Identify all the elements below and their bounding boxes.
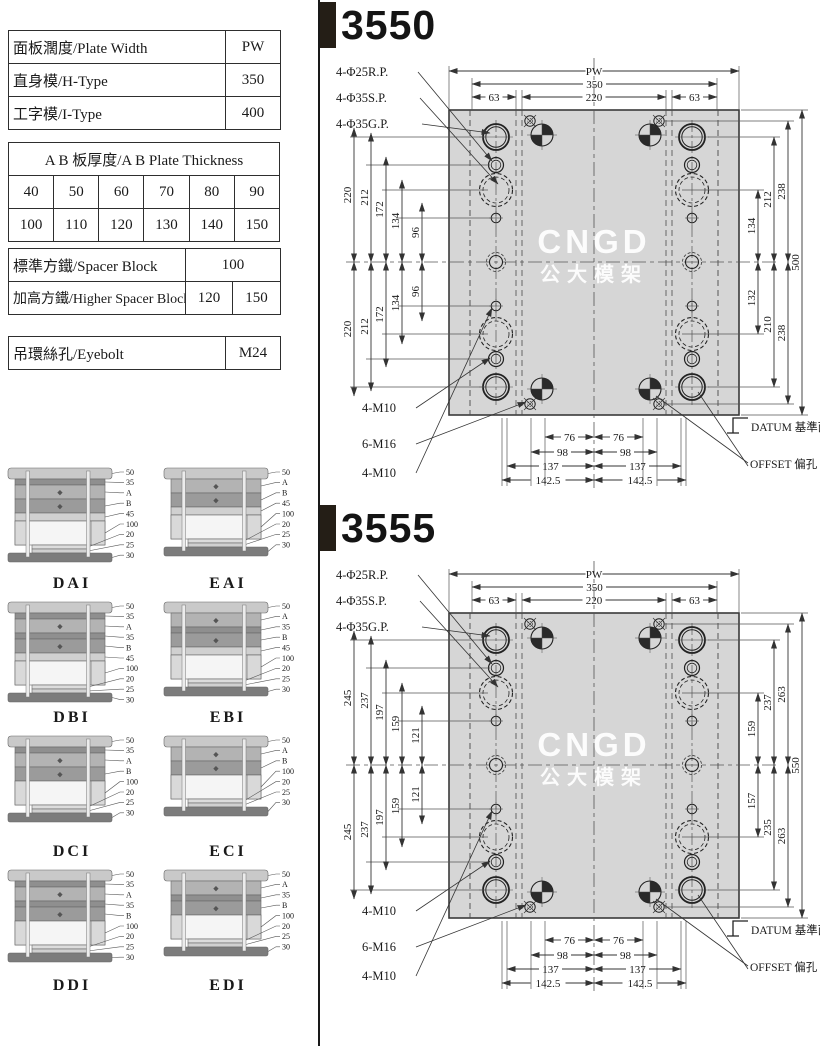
mold-type-cell: 50◆A35◆B45100202530EBI — [158, 598, 314, 732]
mold-layer — [8, 553, 112, 562]
mold-type-cell: 5035◆A◆B45100202530DAI — [2, 464, 158, 598]
guide-pin — [26, 471, 30, 557]
mold-layer — [164, 947, 268, 956]
dim-label: 245 — [342, 823, 354, 840]
spec-value: 400 — [226, 97, 281, 130]
svg-text:◆: ◆ — [57, 503, 63, 511]
mold-layer-label: 35 — [282, 623, 290, 632]
guide-pin — [243, 605, 247, 691]
mold-layer-label: 50 — [126, 602, 134, 611]
dim-label: 121 — [410, 786, 422, 803]
mold-layer-label: 20 — [282, 777, 290, 786]
guide-pin — [243, 471, 247, 551]
guide-pin — [182, 605, 186, 691]
thickness-cell: 90 — [234, 176, 279, 209]
dim-label: 212 — [762, 191, 774, 208]
offset-label: OFFSET 偏孔 — [750, 960, 818, 974]
hole-callout-label: 4-Φ35G.P. — [336, 117, 389, 131]
dim-label: 263 — [776, 686, 788, 703]
mold-type-cell: 5035◆A◆B100202530DCI — [2, 732, 158, 866]
thickness-cell: 80 — [189, 176, 234, 209]
datum-symbol — [727, 921, 748, 936]
dim-label: 172 — [374, 306, 386, 323]
dim-label: 142.5 — [536, 475, 561, 487]
mold-layer — [188, 803, 244, 807]
dim-label: 63 — [489, 595, 501, 607]
hole-callout-label: 4-Φ35S.P. — [336, 91, 387, 105]
mold-type-name: EDI — [158, 977, 298, 995]
mold-layer — [8, 870, 112, 881]
svg-text:◆: ◆ — [57, 489, 63, 497]
dim-label: 134 — [390, 212, 402, 229]
svg-text:◆: ◆ — [213, 637, 219, 645]
mold-layer-label: A — [126, 757, 132, 766]
dim-label: 63 — [689, 595, 701, 607]
thickness-cell: 130 — [144, 209, 189, 242]
mold-layer — [164, 870, 268, 881]
dim-label: 210 — [762, 316, 774, 333]
datum-symbol — [727, 418, 748, 433]
watermark-logo: 公大模架 — [540, 765, 648, 789]
dim-label: 134 — [746, 217, 758, 234]
datum-label: DATUM 基準面 — [751, 420, 820, 434]
mold-layer — [8, 813, 112, 822]
watermark-logo: 公大模架 — [540, 262, 648, 286]
mold-layer-label: B — [282, 633, 287, 642]
mold-layer-label: 25 — [126, 798, 134, 807]
mold-type-name: ECI — [158, 843, 298, 861]
dim-label: 157 — [746, 792, 758, 809]
dim-label: 63 — [489, 92, 501, 104]
plate-top-view-drawing: CNGD公大模架22022021221217217213413496961341… — [320, 55, 820, 505]
mold-layer — [8, 693, 112, 702]
drawing-header: 3555 — [320, 505, 436, 551]
mold-layer-label: 20 — [282, 520, 290, 529]
screw-callout-label: 4-M10 — [362, 969, 396, 983]
mold-layer-label: B — [282, 489, 287, 498]
catalog-page: 面板濶度/Plate Width PW 直身模/H-Type 350 工字模/I… — [0, 0, 820, 1046]
dim-label: 142.5 — [628, 978, 653, 990]
dim-label: 76 — [613, 935, 625, 947]
mold-layer-label: 25 — [126, 541, 134, 550]
screw-callout-label: 4-M10 — [362, 401, 396, 415]
svg-text:◆: ◆ — [57, 771, 63, 779]
mold-layer-label: 30 — [126, 551, 134, 560]
dim-label: 220 — [342, 186, 354, 203]
screw-callout-label: 4-M10 — [362, 904, 396, 918]
spec-label: 直身模/H-Type — [9, 64, 226, 97]
spec-label: 加高方鐵/Higher Spacer Block — [9, 282, 186, 315]
mold-layer-label: 25 — [126, 943, 134, 952]
spec-value: 150 — [233, 282, 281, 315]
dim-label: 96 — [410, 227, 422, 239]
mold-layer-label: 50 — [282, 602, 290, 611]
thickness-cell: 60 — [99, 176, 144, 209]
mold-layer — [8, 602, 112, 613]
thickness-cell: 100 — [9, 209, 54, 242]
offset-label: OFFSET 偏孔 — [750, 457, 818, 471]
dim-label: 212 — [359, 189, 371, 206]
spec-value: 100 — [186, 249, 281, 282]
mold-layer-label: 30 — [126, 695, 134, 704]
dim-label: 98 — [620, 447, 632, 459]
dim-label: 98 — [620, 950, 632, 962]
dim-label: 159 — [746, 720, 758, 737]
plate-top-view-drawing: CNGD公大模架24524523723719719715915912112115… — [320, 558, 820, 1008]
svg-text:◆: ◆ — [57, 891, 63, 899]
svg-text:◆: ◆ — [213, 885, 219, 893]
dim-label: 263 — [776, 827, 788, 844]
title-bar-mark — [320, 2, 336, 48]
guide-pin — [182, 873, 186, 951]
mold-layer-label: 45 — [126, 509, 134, 518]
svg-text:◆: ◆ — [213, 483, 219, 491]
mold-layer-label: B — [126, 643, 131, 652]
svg-text:◆: ◆ — [213, 751, 219, 759]
spec-value: 350 — [226, 64, 281, 97]
guide-pin — [243, 873, 247, 951]
mold-layer-label: 25 — [282, 932, 290, 941]
dim-label: 142.5 — [536, 978, 561, 990]
mold-section-diagram: 5035◆A◆B100202530 — [2, 732, 158, 844]
dim-label: 159 — [390, 797, 402, 814]
mold-type-cell: 5035◆A35◆B45100202530DBI — [2, 598, 158, 732]
dim-label: 237 — [762, 694, 774, 711]
mold-layer-label: B — [126, 911, 131, 920]
dim-label: 238 — [776, 183, 788, 200]
mold-layer-label: A — [282, 746, 288, 755]
mold-layer — [188, 539, 244, 543]
mold-layer — [164, 602, 268, 613]
mold-layer-label: A — [282, 880, 288, 889]
thickness-cell: 50 — [54, 176, 99, 209]
hole-callout-label: 4-Φ25R.P. — [336, 65, 388, 79]
spec-table-spacer: 標準方鐵/Spacer Block 100 加高方鐵/Higher Spacer… — [8, 248, 281, 315]
mold-layer-label: 20 — [126, 530, 134, 539]
mold-layer-label: 25 — [282, 530, 290, 539]
dim-label: 96 — [410, 286, 422, 298]
svg-text:◆: ◆ — [213, 497, 219, 505]
spec-tables: 面板濶度/Plate Width PW 直身模/H-Type 350 工字模/I… — [8, 30, 280, 370]
dim-label: 245 — [342, 689, 354, 706]
watermark-logo: CNGD — [537, 726, 650, 763]
screw-callout-label: 4-M10 — [362, 466, 396, 480]
guide-pin — [87, 471, 91, 557]
datum-label: DATUM 基準面 — [751, 923, 820, 937]
drawing-section-3555: 3555 CNGD公大模架245245237237197197159159121… — [320, 503, 820, 1046]
dim-label: 76 — [564, 432, 576, 444]
mold-layer-label: B — [126, 499, 131, 508]
mold-layer — [188, 943, 244, 947]
guide-pin — [87, 873, 91, 957]
mold-layer-label: 100 — [126, 664, 138, 673]
dim-label: 220 — [342, 320, 354, 337]
mold-type-name: DAI — [2, 575, 142, 593]
screw-callout-label: 6-M16 — [362, 940, 396, 954]
svg-text:◆: ◆ — [57, 757, 63, 765]
spec-table-basic: 面板濶度/Plate Width PW 直身模/H-Type 350 工字模/I… — [8, 30, 281, 130]
guide-pin — [26, 873, 30, 957]
svg-text:◆: ◆ — [213, 617, 219, 625]
mold-layer-label: 35 — [126, 901, 134, 910]
watermark-logo: CNGD — [537, 223, 650, 260]
mold-type-cell: 50◆A◆B45100202530EAI — [158, 464, 314, 598]
mold-section-diagram: 5035◆A35◆B45100202530 — [2, 598, 158, 710]
spec-table-eyebolt: 吊環絲孔/Eyebolt M24 — [8, 336, 281, 370]
mold-type-name: EAI — [158, 575, 298, 593]
mold-layer-label: A — [126, 623, 132, 632]
mold-layer-label: A — [126, 489, 132, 498]
mold-layer-label: B — [282, 757, 287, 766]
mold-type-name: EBI — [158, 709, 298, 727]
dim-label: 237 — [359, 692, 371, 709]
mold-type-name: DDI — [2, 977, 142, 995]
mold-type-cell: 50◆A◆B100202530ECI — [158, 732, 314, 866]
mold-layer-label: 50 — [126, 468, 134, 477]
mold-layer-label: 50 — [282, 870, 290, 879]
mold-layer-label: 30 — [282, 943, 290, 952]
dim-label: 220 — [586, 595, 603, 607]
svg-text:◆: ◆ — [57, 911, 63, 919]
guide-pin — [182, 471, 186, 551]
mold-layer — [32, 549, 88, 553]
mold-layer — [32, 949, 88, 953]
mold-section-diagram: 50◆A◆B45100202530 — [158, 464, 314, 576]
drawing-title: 3550 — [341, 2, 436, 48]
mold-layer-label: 20 — [282, 664, 290, 673]
mold-layer-label: 25 — [126, 685, 134, 694]
title-bar-mark — [320, 505, 336, 551]
screw-callout-label: 6-M16 — [362, 437, 396, 451]
mold-layer-label: 35 — [282, 891, 290, 900]
mold-layer-label: 30 — [126, 809, 134, 818]
dim-label: 172 — [374, 201, 386, 218]
dim-label: 550 — [790, 757, 802, 774]
mold-layer-label: 100 — [126, 777, 138, 786]
mold-layer-label: 50 — [126, 870, 134, 879]
hole-callout-label: 4-Φ35G.P. — [336, 620, 389, 634]
mold-layer — [32, 809, 88, 813]
drawing-header: 3550 — [320, 2, 436, 48]
dim-label: 137 — [629, 461, 646, 473]
spec-label: 吊環絲孔/Eyebolt — [9, 337, 226, 370]
mold-layer-label: 20 — [126, 788, 134, 797]
thickness-cell: 150 — [234, 209, 279, 242]
mold-layer-label: A — [282, 612, 288, 621]
svg-text:◆: ◆ — [213, 905, 219, 913]
mold-layer — [8, 736, 112, 747]
guide-pin — [87, 605, 91, 697]
mold-layer-label: 20 — [126, 675, 134, 684]
guide-pin — [243, 739, 247, 811]
dim-label: 137 — [629, 964, 646, 976]
mold-layer-label: 45 — [126, 654, 134, 663]
dim-label: 63 — [689, 92, 701, 104]
guide-pin — [182, 739, 186, 811]
svg-text:◆: ◆ — [57, 643, 63, 651]
mold-layer — [32, 945, 88, 949]
mold-layer-label: 100 — [282, 767, 294, 776]
dim-label: 235 — [762, 819, 774, 836]
dim-label: 76 — [613, 432, 625, 444]
thickness-cell: 70 — [144, 176, 189, 209]
thickness-cell: 140 — [189, 209, 234, 242]
mold-layer — [188, 939, 244, 943]
mold-layer-label: 30 — [126, 953, 134, 962]
mold-layer — [188, 679, 244, 683]
mold-section-diagram: 5035◆A◆B45100202530 — [2, 464, 158, 576]
thickness-cell: 110 — [54, 209, 99, 242]
mold-layer-label: A — [126, 891, 132, 900]
dim-label: 76 — [564, 935, 576, 947]
drawing-title: 3555 — [341, 505, 436, 551]
mold-layer-label: 100 — [126, 922, 138, 931]
mold-layer — [188, 543, 244, 547]
mold-layer-label: 50 — [282, 736, 290, 745]
mold-type-name: DCI — [2, 843, 142, 861]
dim-label: 98 — [557, 447, 569, 459]
mold-layer-label: 50 — [126, 736, 134, 745]
spec-value: PW — [226, 31, 281, 64]
mold-layer-label: 30 — [282, 685, 290, 694]
dim-label: 237 — [359, 821, 371, 838]
mold-layer-label: 20 — [126, 932, 134, 941]
mold-layer-label: 35 — [126, 633, 134, 642]
mold-layer-label: 100 — [282, 911, 294, 920]
mold-layer-label: A — [282, 478, 288, 487]
mold-layer-label: 30 — [282, 541, 290, 550]
mold-layer-label: 45 — [282, 643, 290, 652]
mold-section-diagram: 50◆A35◆B45100202530 — [158, 598, 314, 710]
mold-section-diagram: 5035◆A35◆B100202530 — [2, 866, 158, 978]
mold-layer-label: 25 — [282, 788, 290, 797]
svg-text:◆: ◆ — [213, 765, 219, 773]
guide-pin — [87, 739, 91, 817]
mold-layer-label: 50 — [282, 468, 290, 477]
mold-layer-label: 30 — [282, 798, 290, 807]
mold-layer-label: 20 — [282, 922, 290, 931]
mold-section-diagram: 50◆A35◆B100202530 — [158, 866, 314, 978]
dim-label: 197 — [374, 809, 386, 826]
spec-value: 120 — [186, 282, 233, 315]
mold-layer-label: B — [126, 767, 131, 776]
hole-callout-label: 4-Φ25R.P. — [336, 568, 388, 582]
dim-label: 500 — [790, 254, 802, 271]
spec-label: 面板濶度/Plate Width — [9, 31, 226, 64]
guide-pin — [26, 739, 30, 817]
mold-layer — [32, 545, 88, 549]
mold-layer — [188, 799, 244, 803]
guide-pin — [26, 605, 30, 697]
dim-label: 350 — [586, 79, 603, 91]
dim-label: 134 — [390, 294, 402, 311]
dim-label: 197 — [374, 704, 386, 721]
spec-label: 工字模/I-Type — [9, 97, 226, 130]
mold-layer — [32, 805, 88, 809]
mold-layer — [164, 468, 268, 479]
mold-layer — [164, 807, 268, 816]
thickness-cell: 40 — [9, 176, 54, 209]
mold-layer — [8, 468, 112, 479]
dim-label: PW — [586, 66, 603, 78]
dim-label: PW — [586, 569, 603, 581]
mold-layer-label: 100 — [282, 509, 294, 518]
mold-layer-label: 35 — [126, 612, 134, 621]
thickness-cell: 120 — [99, 209, 144, 242]
spec-value: M24 — [226, 337, 281, 370]
mold-layer-label: 100 — [282, 654, 294, 663]
thickness-header: A B 板厚度/A B Plate Thickness — [9, 143, 280, 176]
dim-label: 142.5 — [628, 475, 653, 487]
mold-layer-label: 35 — [126, 746, 134, 755]
spec-label: 標準方鐵/Spacer Block — [9, 249, 186, 282]
mold-layer — [164, 687, 268, 696]
mold-layer-label: 35 — [126, 880, 134, 889]
mold-layer — [32, 685, 88, 689]
dim-label: 137 — [542, 964, 559, 976]
mold-layer — [164, 736, 268, 747]
dim-label: 132 — [746, 290, 758, 307]
dim-label: 350 — [586, 582, 603, 594]
mold-layer-label: 35 — [126, 478, 134, 487]
drawing-section-3550: 3550 CNGD公大模架220220212212172172134134969… — [320, 0, 820, 503]
mold-layer — [8, 953, 112, 962]
mold-layer-label: 25 — [282, 675, 290, 684]
mold-type-cell: 5035◆A35◆B100202530DDI — [2, 866, 158, 1000]
dim-label: 159 — [390, 715, 402, 732]
hole-callout-label: 4-Φ35S.P. — [336, 594, 387, 608]
mold-layer — [32, 689, 88, 693]
dim-label: 137 — [542, 461, 559, 473]
mold-type-diagrams: 5035◆A◆B45100202530DAI50◆A◆B45100202530E… — [2, 464, 316, 1000]
mold-layer-label: 45 — [282, 499, 290, 508]
spec-table-thickness: A B 板厚度/A B Plate Thickness 40 50 60 70 … — [8, 142, 280, 242]
dim-label: 220 — [586, 92, 603, 104]
svg-text:◆: ◆ — [57, 623, 63, 631]
mold-layer-label: B — [282, 901, 287, 910]
mold-layer — [164, 547, 268, 556]
mold-layer — [188, 683, 244, 687]
dim-label: 212 — [359, 318, 371, 335]
mold-type-name: DBI — [2, 709, 142, 727]
mold-layer-label: 100 — [126, 520, 138, 529]
mold-section-diagram: 50◆A◆B100202530 — [158, 732, 314, 844]
dim-label: 98 — [557, 950, 569, 962]
dim-label: 121 — [410, 727, 422, 744]
mold-type-cell: 50◆A35◆B100202530EDI — [158, 866, 314, 1000]
dim-label: 238 — [776, 324, 788, 341]
